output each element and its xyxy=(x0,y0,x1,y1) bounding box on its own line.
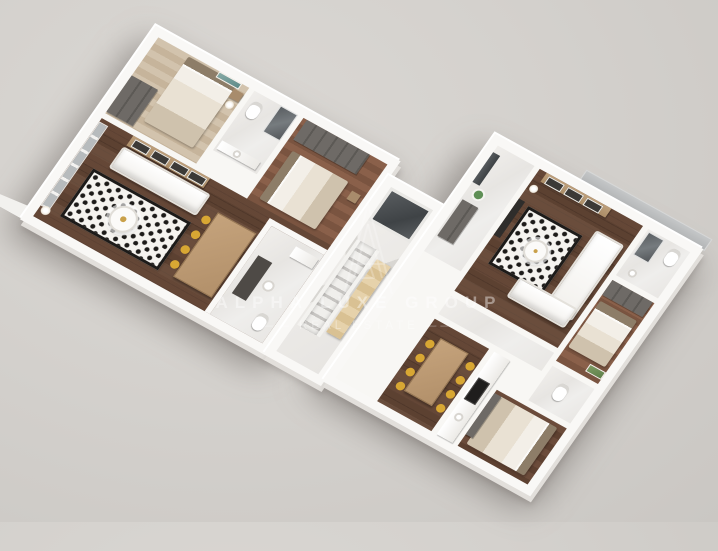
toilet xyxy=(243,100,264,121)
floorplan-render-stage: ALPHA LUXE GROUP ——REAL ESTATE—— xyxy=(0,0,718,522)
shower-glass xyxy=(633,232,665,264)
nightstand xyxy=(346,191,361,204)
picture-frame xyxy=(544,176,565,192)
vanity-counter xyxy=(232,255,273,301)
toilet xyxy=(249,311,270,332)
hall-cabinet xyxy=(437,199,478,244)
wall-sconce xyxy=(527,183,540,195)
picture-frame xyxy=(582,198,603,214)
picture-frame xyxy=(563,187,584,203)
sink xyxy=(626,267,639,279)
plant xyxy=(472,189,485,201)
toilet xyxy=(661,247,682,268)
dining-table xyxy=(404,338,469,406)
toilet xyxy=(550,382,571,403)
washer xyxy=(289,246,319,268)
oven xyxy=(464,377,490,405)
sink xyxy=(260,278,277,294)
building-scene xyxy=(0,0,703,546)
kitchen-sink xyxy=(452,411,465,423)
